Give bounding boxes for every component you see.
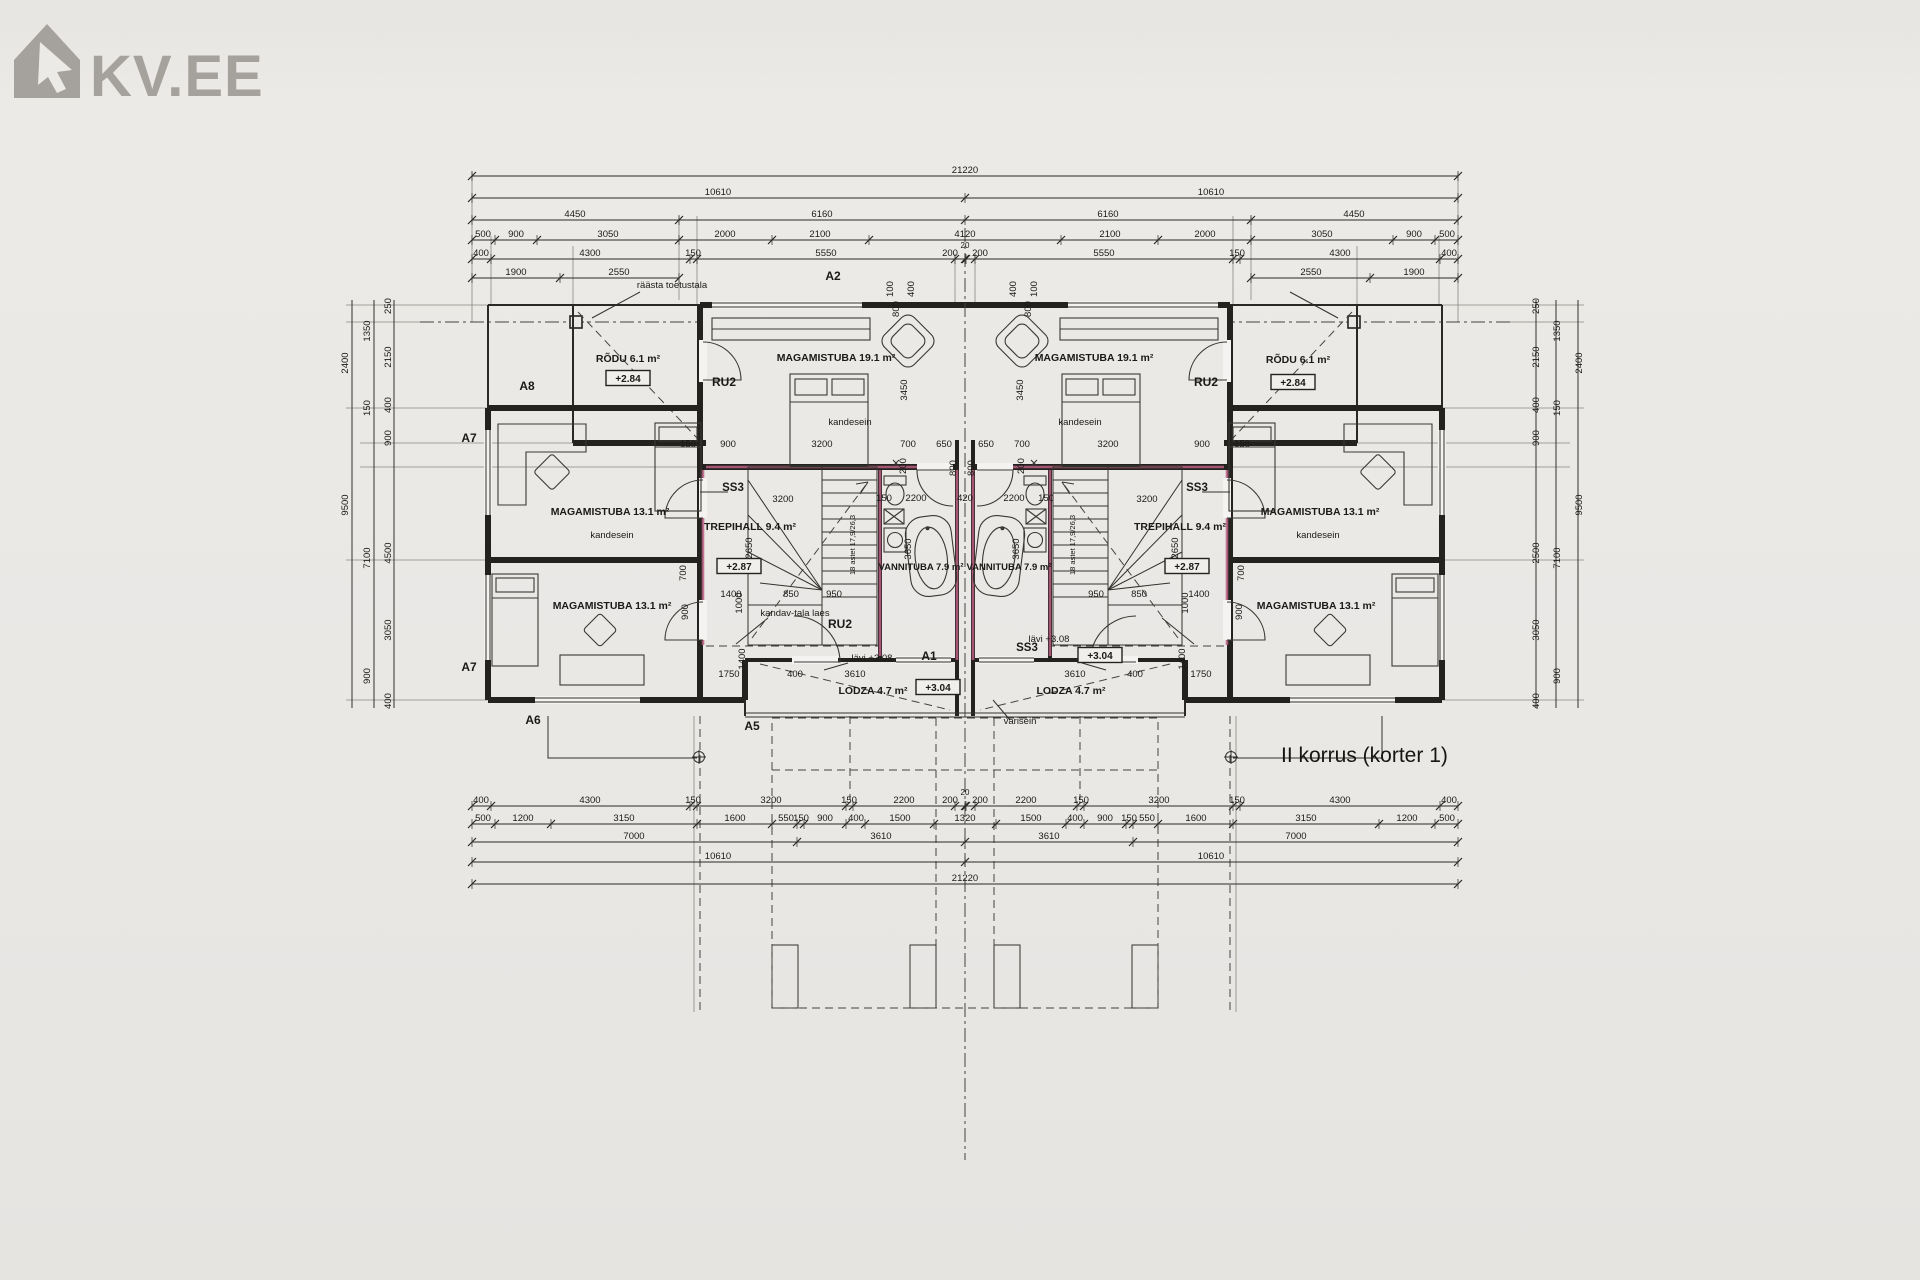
room-magamistuba-13-left-lower: MAGAMISTUBA 13.1 m² (553, 600, 672, 612)
dim-label: 2100 (1099, 229, 1120, 240)
dim-label: 150 (1229, 795, 1245, 806)
note-raasta-toetustala: räästa toetustala (637, 280, 708, 291)
dim-label: 150 (1552, 400, 1563, 416)
dim-label: 7000 (623, 831, 644, 842)
dim-label: 2550 (1300, 267, 1321, 278)
dim-label: 4300 (1329, 248, 1350, 259)
note-kandav-tala: kandav-tala laes (760, 608, 829, 619)
axis-label-a7-lower: A7 (461, 660, 477, 674)
dim-label: 3200 (760, 795, 781, 806)
dim-label: 800 (966, 460, 977, 476)
dim-label: 2200 (1015, 795, 1036, 806)
dim-label: 4500 (383, 542, 394, 563)
dim-label: 4300 (579, 795, 600, 806)
dim-label: 3050 (383, 619, 394, 640)
dim-label: 2100 (809, 229, 830, 240)
note-kandesein-right-top: kandesein (1058, 417, 1101, 428)
dim-label: 2650 (1170, 537, 1181, 558)
dim-label: 4450 (564, 209, 585, 220)
dim-label: 1500 (889, 813, 910, 824)
note-lavi-right: lävi +3.08 (1029, 634, 1070, 645)
room-magamistuba-13-right-upper: MAGAMISTUBA 13.1 m² (1261, 506, 1380, 518)
dim-label: 900 (1194, 439, 1210, 450)
dim-label: 400 (787, 669, 803, 680)
elevation-trepihall-right: +2.87 (1174, 562, 1200, 573)
dim-label: 150 (1121, 813, 1137, 824)
dim-label: 18 astet 17,9/26,3 (848, 515, 857, 575)
furniture-bedroom-13-lower (492, 574, 644, 685)
room-vannituba-right: VANNITUBA 7.9 m² (967, 562, 1052, 573)
dim-label: 1200 (1396, 813, 1417, 824)
dim-label: 400 (1127, 669, 1143, 680)
dim-label: 100 (1029, 281, 1040, 297)
dim-label: 3050 (1311, 229, 1332, 240)
dim-label: 400 (473, 795, 489, 806)
dim-label: 18 astet 17,9/26,3 (1068, 515, 1077, 575)
note-kandesein-left-top: kandesein (828, 417, 871, 428)
dim-label: 6160 (1097, 209, 1118, 220)
dim-label: 550 (778, 813, 794, 824)
dim-label: 3610 (870, 831, 891, 842)
dim-label: 150 (685, 248, 701, 259)
dim-label: 400 (906, 281, 917, 297)
window-code-ss3-left: SS3 (722, 482, 744, 494)
dim-label: 900 (1234, 604, 1245, 620)
dim-label: 150 (1073, 795, 1089, 806)
axis-label-a1: A1 (921, 649, 937, 663)
dim-label: 1400 (737, 648, 748, 669)
dim-label: 3200 (1148, 795, 1169, 806)
dim-label: 400 (1531, 397, 1542, 413)
dim-label: 3200 (811, 439, 832, 450)
dim-label: 6160 (811, 209, 832, 220)
dim-label: 2500 (1531, 542, 1542, 563)
dim-label: 3610 (1064, 669, 1085, 680)
dim-label: 700 (678, 565, 689, 581)
room-vannituba-left: VANNITUBA 7.9 m² (879, 562, 964, 573)
dim-label: 3650 (1011, 538, 1022, 559)
dim-label: 200 (972, 248, 988, 259)
door-code-ru2-left-top: RU2 (712, 375, 736, 389)
dim-label: 400 (1067, 813, 1083, 824)
dim-label: 150 (680, 439, 696, 450)
dim-label: 200 (942, 795, 958, 806)
dim-label: 10610 (1198, 187, 1224, 198)
dim-label: 2400 (340, 352, 351, 373)
dim-label: 900 (817, 813, 833, 824)
dim-label: 100 (885, 281, 896, 297)
dim-label: 150 (1229, 248, 1245, 259)
dim-label: 3610 (1038, 831, 1059, 842)
room-magamistuba-19-right: MAGAMISTUBA 19.1 m² (1035, 352, 1154, 364)
dim-label: 9500 (1574, 494, 1585, 515)
dim-label: 7000 (1285, 831, 1306, 842)
dim-label: 200 (972, 795, 988, 806)
dim-label: 2000 (1194, 229, 1215, 240)
dim-label: 150 (793, 813, 809, 824)
logo-text: KV.EE (90, 44, 264, 109)
dim-label: 1500 (1020, 813, 1041, 824)
dim-label: 900 (508, 229, 524, 240)
dim-label: 4120 (954, 229, 975, 240)
dim-label: 800 (1023, 301, 1034, 317)
dim-label: 650 (936, 439, 952, 450)
door-code-ru2-left-bottom: RU2 (828, 617, 852, 631)
dim-label: 900 (1531, 430, 1542, 446)
dim-label: 550 (1139, 813, 1155, 824)
dim-label: 150 (685, 795, 701, 806)
room-rodu-left: RÕDU 6.1 m² (596, 352, 661, 365)
dim-label: 2200 (1003, 493, 1024, 504)
dim-label: 650 (978, 439, 994, 450)
dim-label: 500 (475, 229, 491, 240)
dim-label: 1000 (1180, 592, 1191, 613)
axis-label-a6: A6 (525, 713, 541, 727)
dim-label: 800 (948, 460, 959, 476)
dim-label: 400 (1441, 795, 1457, 806)
dim-label: 400 (1008, 281, 1019, 297)
dim-label: 1900 (1403, 267, 1424, 278)
dim-label: 150 (876, 493, 892, 504)
note-lavi-left: lävi +3.08 (852, 653, 893, 664)
dim-label: 3050 (1531, 619, 1542, 640)
dim-label: 2150 (383, 346, 394, 367)
dim-label: 5550 (1093, 248, 1114, 259)
dim-label: 250 (383, 298, 394, 314)
elevation-rodu-left: +2.84 (615, 374, 641, 385)
dim-label: 900 (1552, 668, 1563, 684)
dim-label: 3150 (1295, 813, 1316, 824)
room-lodza-right: LODZA 4.7 m² (1036, 685, 1106, 697)
dim-label: 900 (383, 430, 394, 446)
dim-label: 150 (841, 795, 857, 806)
dim-label: 200 (942, 248, 958, 259)
dimension-annotations: 2122010610106104450616061604450500900305… (340, 165, 1585, 889)
room-magamistuba-19-left: MAGAMISTUBA 19.1 m² (777, 352, 896, 364)
dim-label: 20 (961, 241, 970, 250)
dim-label: 4450 (1343, 209, 1364, 220)
kvee-logo: KV.EE (14, 24, 264, 109)
window-code-ss3-right: SS3 (1186, 482, 1208, 494)
dim-label: 4300 (579, 248, 600, 259)
dim-label: 2200 (893, 795, 914, 806)
dim-label: 1400 (1177, 648, 1188, 669)
dim-label: 5550 (815, 248, 836, 259)
dim-label: 10610 (705, 851, 731, 862)
dim-label: 400 (848, 813, 864, 824)
dim-label: 1750 (1190, 669, 1211, 680)
dim-label: 7100 (1552, 547, 1563, 568)
dim-label: 150 (362, 400, 373, 416)
dim-label: 10610 (1198, 851, 1224, 862)
eave-post (570, 316, 582, 328)
dim-label: 200 (898, 458, 909, 474)
door-code-ru2-right-top: RU2 (1194, 375, 1218, 389)
dim-label: 3200 (1097, 439, 1118, 450)
dim-label: 150 (1234, 439, 1250, 450)
dim-label: 1200 (512, 813, 533, 824)
dim-label: 4300 (1329, 795, 1350, 806)
dim-label: 400 (383, 397, 394, 413)
dim-label: 850 (1131, 589, 1147, 600)
dim-label: 3650 (903, 538, 914, 559)
dim-label: 500 (1439, 229, 1455, 240)
dim-label: 10610 (705, 187, 731, 198)
dim-label: 21220 (952, 873, 978, 884)
room-magamistuba-13-left-upper: MAGAMISTUBA 13.1 m² (551, 506, 670, 518)
dim-label: 2400 (1574, 352, 1585, 373)
dim-label: 1000 (734, 592, 745, 613)
dim-label: 400 (1441, 248, 1457, 259)
dim-label: 900 (1406, 229, 1422, 240)
eave-line (420, 292, 703, 328)
right-unit-mirror (965, 172, 1584, 1012)
page: { "logo": {"text": "KV.EE", "icon": "hou… (0, 0, 1920, 1280)
dim-label: 850 (783, 589, 799, 600)
dim-label: 700 (900, 439, 916, 450)
dim-label: 950 (1088, 589, 1104, 600)
dim-label: 3200 (1136, 494, 1157, 505)
plan-caption: II korrus (korter 1) (1281, 744, 1448, 767)
dim-label: 700 (1236, 565, 1247, 581)
dim-label: 20 (961, 788, 970, 797)
dim-label: 3450 (1015, 379, 1026, 400)
dim-label: 1600 (724, 813, 745, 824)
dim-label: 1350 (362, 320, 373, 341)
dim-label: 800 (891, 301, 902, 317)
dim-label: 900 (362, 668, 373, 684)
left-unit-drawing (346, 172, 965, 1012)
room-magamistuba-13-right-lower: MAGAMISTUBA 13.1 m² (1257, 600, 1376, 612)
elevation-trepihall-left: +2.87 (726, 562, 752, 573)
dim-label: 1350 (1552, 320, 1563, 341)
elevation-lodza-right: +3.04 (1087, 651, 1113, 662)
note-varisein: varisein (1004, 716, 1037, 727)
dim-label: 2650 (744, 537, 755, 558)
dim-label: 400 (383, 693, 394, 709)
floorplan-image: KV.EE (0, 0, 1920, 1280)
dim-label: 2550 (608, 267, 629, 278)
note-kandesein-left-mid: kandesein (590, 530, 633, 541)
note-kandesein-right-mid: kandesein (1296, 530, 1339, 541)
dim-label: 2150 (1531, 346, 1542, 367)
axis-label-a5: A5 (744, 719, 760, 733)
room-trepihall-right: TREPIHALL 9.4 m² (1134, 521, 1226, 533)
dim-label: 3610 (844, 669, 865, 680)
dim-label: 3450 (899, 379, 910, 400)
extension-lines (346, 172, 955, 1012)
dim-label: 3200 (772, 494, 793, 505)
dim-label: 400 (473, 248, 489, 259)
room-rodu-right: RÕDU 6.1 m² (1266, 353, 1331, 366)
dim-label: 7100 (362, 547, 373, 568)
dim-label: 500 (475, 813, 491, 824)
dim-label: 3050 (597, 229, 618, 240)
elevation-lodza-left: +3.04 (925, 683, 951, 694)
dim-label: 1400 (1188, 589, 1209, 600)
dim-label: 1900 (505, 267, 526, 278)
dim-label: 400 (1531, 693, 1542, 709)
dim-label: 1750 (718, 669, 739, 680)
dim-label: 21220 (952, 165, 978, 176)
dim-label: 420 (957, 493, 973, 504)
dim-label: 1320 (954, 813, 975, 824)
dim-label: 250 (1531, 298, 1542, 314)
dim-label: 3150 (613, 813, 634, 824)
dim-label: 150 (1038, 493, 1054, 504)
dim-label: 900 (720, 439, 736, 450)
axis-label-a7-upper: A7 (461, 431, 477, 445)
room-lodza-left: LODZA 4.7 m² (838, 685, 908, 697)
dim-label: 1600 (1185, 813, 1206, 824)
elevation-rodu-right: +2.84 (1280, 378, 1306, 389)
dim-label: 200 (1016, 458, 1027, 474)
dim-label: 2200 (905, 493, 926, 504)
dim-label: 9500 (340, 494, 351, 515)
axis-label-a8: A8 (519, 379, 535, 393)
dim-label: 2000 (714, 229, 735, 240)
room-trepihall-left: TREPIHALL 9.4 m² (704, 521, 796, 533)
bathroom-fixtures (884, 460, 959, 599)
dim-label: 700 (1014, 439, 1030, 450)
dim-label: 900 (1097, 813, 1113, 824)
dim-label: 500 (1439, 813, 1455, 824)
dim-label: 950 (826, 589, 842, 600)
axis-label-a2: A2 (825, 269, 841, 283)
dim-label: 900 (680, 604, 691, 620)
